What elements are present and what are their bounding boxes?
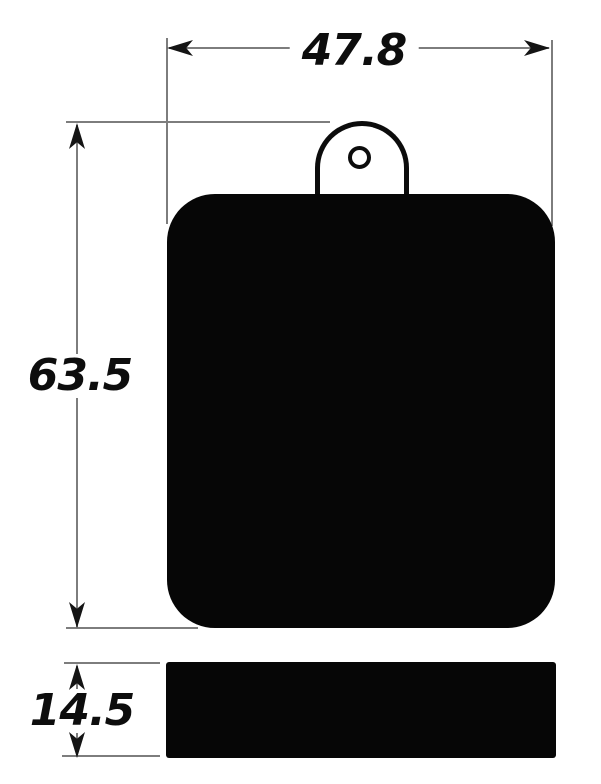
thickness-dimension-label: 14.5 [18, 689, 147, 733]
dimension-drawing: 47.8 63.5 14.5 [0, 0, 601, 784]
height-extension-line-top [66, 121, 330, 123]
height-extension-line-bottom [66, 627, 198, 629]
pad-front-view [167, 194, 555, 628]
thickness-extension-line-top [64, 662, 160, 664]
mounting-tab-hole [348, 146, 371, 169]
width-dimension-label: 47.8 [290, 29, 419, 73]
width-extension-line-right [551, 40, 553, 226]
height-dimension-label: 63.5 [16, 354, 145, 398]
pad-side-view [166, 662, 556, 758]
width-extension-line-left [166, 38, 168, 224]
